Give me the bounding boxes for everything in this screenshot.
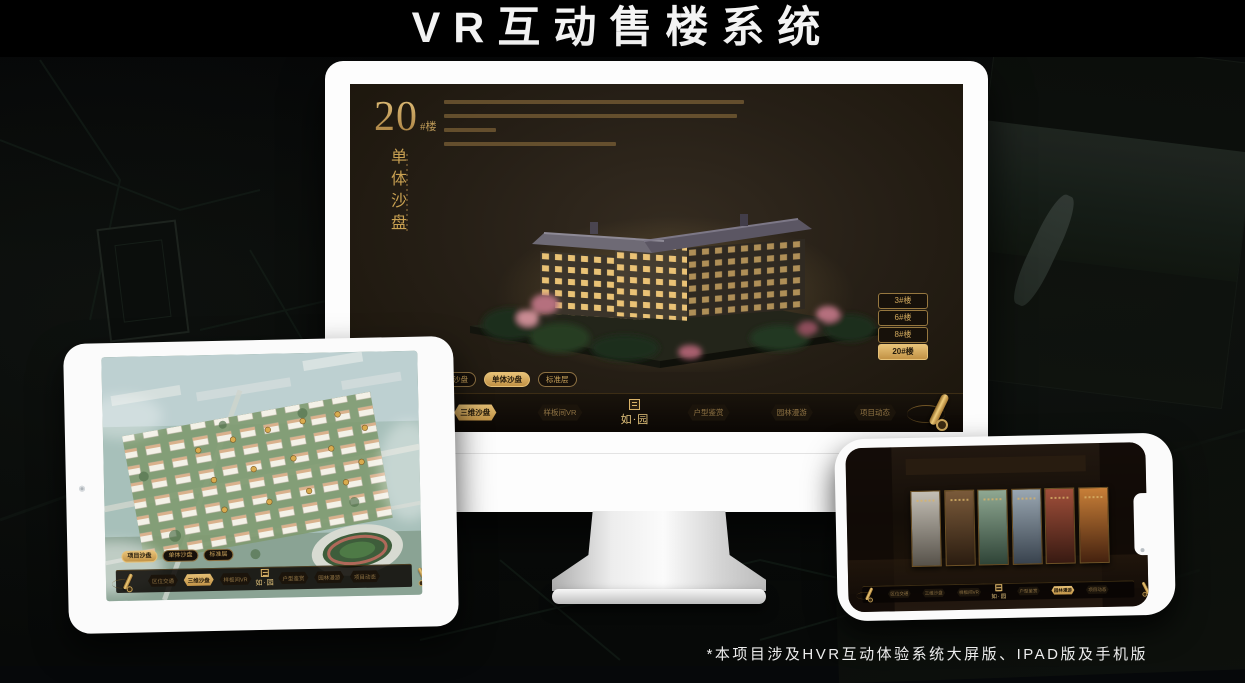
- building-button-20[interactable]: 20#楼: [878, 344, 928, 360]
- tablet-tab-single-sandbox[interactable]: 单体沙盘: [162, 549, 198, 562]
- nav-item-floorplans[interactable]: 户型鉴赏: [1015, 586, 1041, 597]
- phone-panel-autumn-courtyard[interactable]: [1044, 488, 1076, 565]
- background-screenshot: [955, 33, 1245, 408]
- nav-item-garden-tour[interactable]: 园林漫游: [312, 570, 346, 585]
- tablet-device: 项目沙盘 单体沙盘 标准层 区位交通 三维沙盘 样板间VR 如·园 户型鉴赏 园…: [63, 336, 459, 634]
- phone-screen: 区位交通 三维沙盘 样板间VR 如·园 户型鉴赏 园林漫游 项目动态: [845, 442, 1148, 612]
- phone-panel-interior-lobby[interactable]: [944, 490, 976, 567]
- brand-seal-icon: [629, 399, 640, 410]
- footnote: *本项目涉及HVR互动体验系统大屏版、IPAD版及手机版: [707, 643, 1148, 664]
- brand-seal-icon: [261, 569, 269, 577]
- nav-item-garden-tour[interactable]: 园林漫游: [768, 403, 816, 422]
- scroll-handle-icon[interactable]: [1140, 581, 1149, 597]
- scroll-handle-icon[interactable]: [907, 392, 953, 432]
- phone-notch: [1133, 493, 1148, 555]
- phone-panel-building-facade[interactable]: [1011, 488, 1043, 565]
- tablet-camera-icon: [79, 486, 85, 492]
- background-plaque: [96, 220, 189, 343]
- tablet-screen: 项目沙盘 单体沙盘 标准层 区位交通 三维沙盘 样板间VR 如·园 户型鉴赏 园…: [101, 351, 422, 602]
- scroll-handle-icon[interactable]: [416, 566, 423, 586]
- tab-single-sandbox[interactable]: 单体沙盘: [484, 372, 530, 387]
- phone-panel-grey-courtyard[interactable]: [910, 490, 942, 567]
- nav-item-3d-sandbox[interactable]: 三维沙盘: [921, 588, 947, 599]
- tab-standard-floor[interactable]: 标准层: [538, 372, 577, 387]
- building-number: 20: [374, 94, 418, 140]
- description-line: [444, 100, 744, 104]
- description-line: [444, 142, 616, 146]
- nav-item-3d-sandbox[interactable]: 三维沙盘: [182, 572, 216, 587]
- nav-item-showroom-vr[interactable]: 样板间VR: [217, 572, 253, 587]
- brand-logo: 如·园: [255, 569, 275, 588]
- page-title: VR互动售楼系统: [0, 0, 1245, 57]
- tablet-sandbox-tabs: 项目沙盘 单体沙盘 标准层: [121, 549, 233, 563]
- phone-device: 区位交通 三维沙盘 样板间VR 如·园 户型鉴赏 园林漫游 项目动态: [834, 432, 1176, 621]
- brand-logo: 如·园: [621, 399, 650, 427]
- gallery-panels: [910, 487, 1109, 567]
- brand-logo: 如·园: [991, 583, 1007, 599]
- nav-item-garden-tour[interactable]: 园林漫游: [1050, 585, 1076, 596]
- nav-item-floorplans[interactable]: 户型鉴赏: [276, 570, 310, 585]
- building-number-suffix: #楼: [420, 121, 437, 133]
- heading-english-decor: [406, 154, 408, 234]
- building-button-6[interactable]: 6#楼: [878, 310, 928, 326]
- tablet-tab-project-sandbox[interactable]: 项目沙盘: [121, 550, 157, 563]
- nav-item-project-news[interactable]: 项目动态: [348, 569, 382, 584]
- poster-stage: VR互动售楼系统 20#楼 单体沙盘: [0, 0, 1245, 666]
- nav-item-project-news[interactable]: 项目动态: [851, 403, 899, 422]
- building-button-8[interactable]: 8#楼: [878, 327, 928, 343]
- nav-item-project-news[interactable]: 项目动态: [1084, 584, 1110, 595]
- page-heading: 20#楼: [374, 96, 437, 138]
- page-heading-vertical: 单体沙盘: [384, 148, 408, 236]
- nav-item-location[interactable]: 区位交通: [146, 573, 180, 588]
- nav-item-location[interactable]: 区位交通: [886, 588, 912, 599]
- interior-beam-decor: [906, 455, 1086, 475]
- description-block: [444, 100, 744, 156]
- phone-panel-garden-pavilion[interactable]: [977, 489, 1009, 566]
- tablet-tab-standard-floor[interactable]: 标准层: [203, 549, 233, 562]
- phone-panel-lit-shelves[interactable]: [1078, 487, 1110, 564]
- nav-item-floorplans[interactable]: 户型鉴赏: [685, 403, 733, 422]
- scroll-handle-icon[interactable]: [856, 587, 875, 603]
- nav-item-showroom-vr[interactable]: 样板间VR: [534, 403, 585, 422]
- scroll-handle-icon[interactable]: [112, 573, 135, 593]
- monitor-stand: [552, 511, 766, 611]
- building-button-3[interactable]: 3#楼: [878, 293, 928, 309]
- brand-seal-icon: [996, 584, 1003, 591]
- phone-camera-icon: [1140, 548, 1144, 552]
- building-render: [440, 156, 900, 372]
- nav-item-showroom-vr[interactable]: 样板间VR: [955, 587, 983, 598]
- description-line: [444, 128, 496, 132]
- nav-item-3d-sandbox[interactable]: 三维沙盘: [451, 403, 499, 422]
- description-line: [444, 114, 737, 118]
